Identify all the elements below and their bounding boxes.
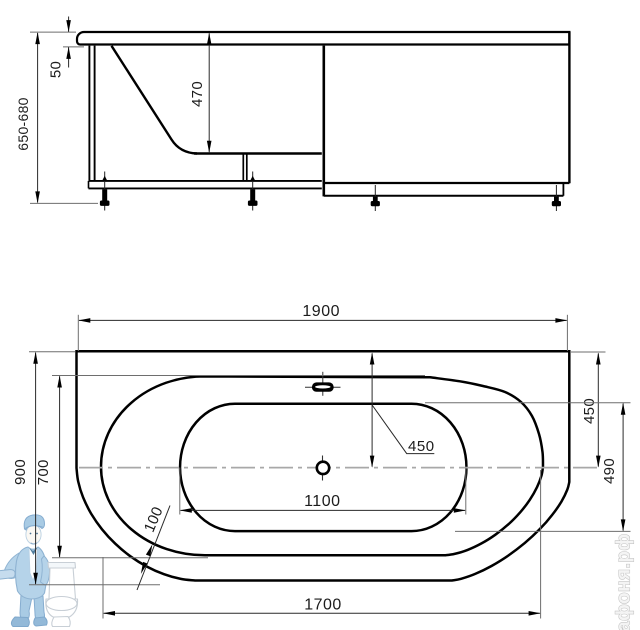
- svg-text:490: 490: [601, 458, 618, 484]
- svg-text:450: 450: [581, 398, 598, 424]
- svg-text:650-680: 650-680: [15, 97, 31, 150]
- svg-text:470: 470: [189, 81, 206, 107]
- svg-text:450: 450: [408, 438, 435, 455]
- svg-text:100: 100: [141, 504, 167, 535]
- svg-text:афоня.рф: афоня.рф: [614, 533, 635, 630]
- svg-text:1700: 1700: [304, 597, 342, 614]
- svg-text:700: 700: [35, 459, 52, 485]
- svg-text:50: 50: [48, 61, 65, 78]
- svg-text:900: 900: [12, 459, 29, 485]
- svg-text:1100: 1100: [304, 493, 340, 510]
- svg-text:1900: 1900: [302, 303, 340, 320]
